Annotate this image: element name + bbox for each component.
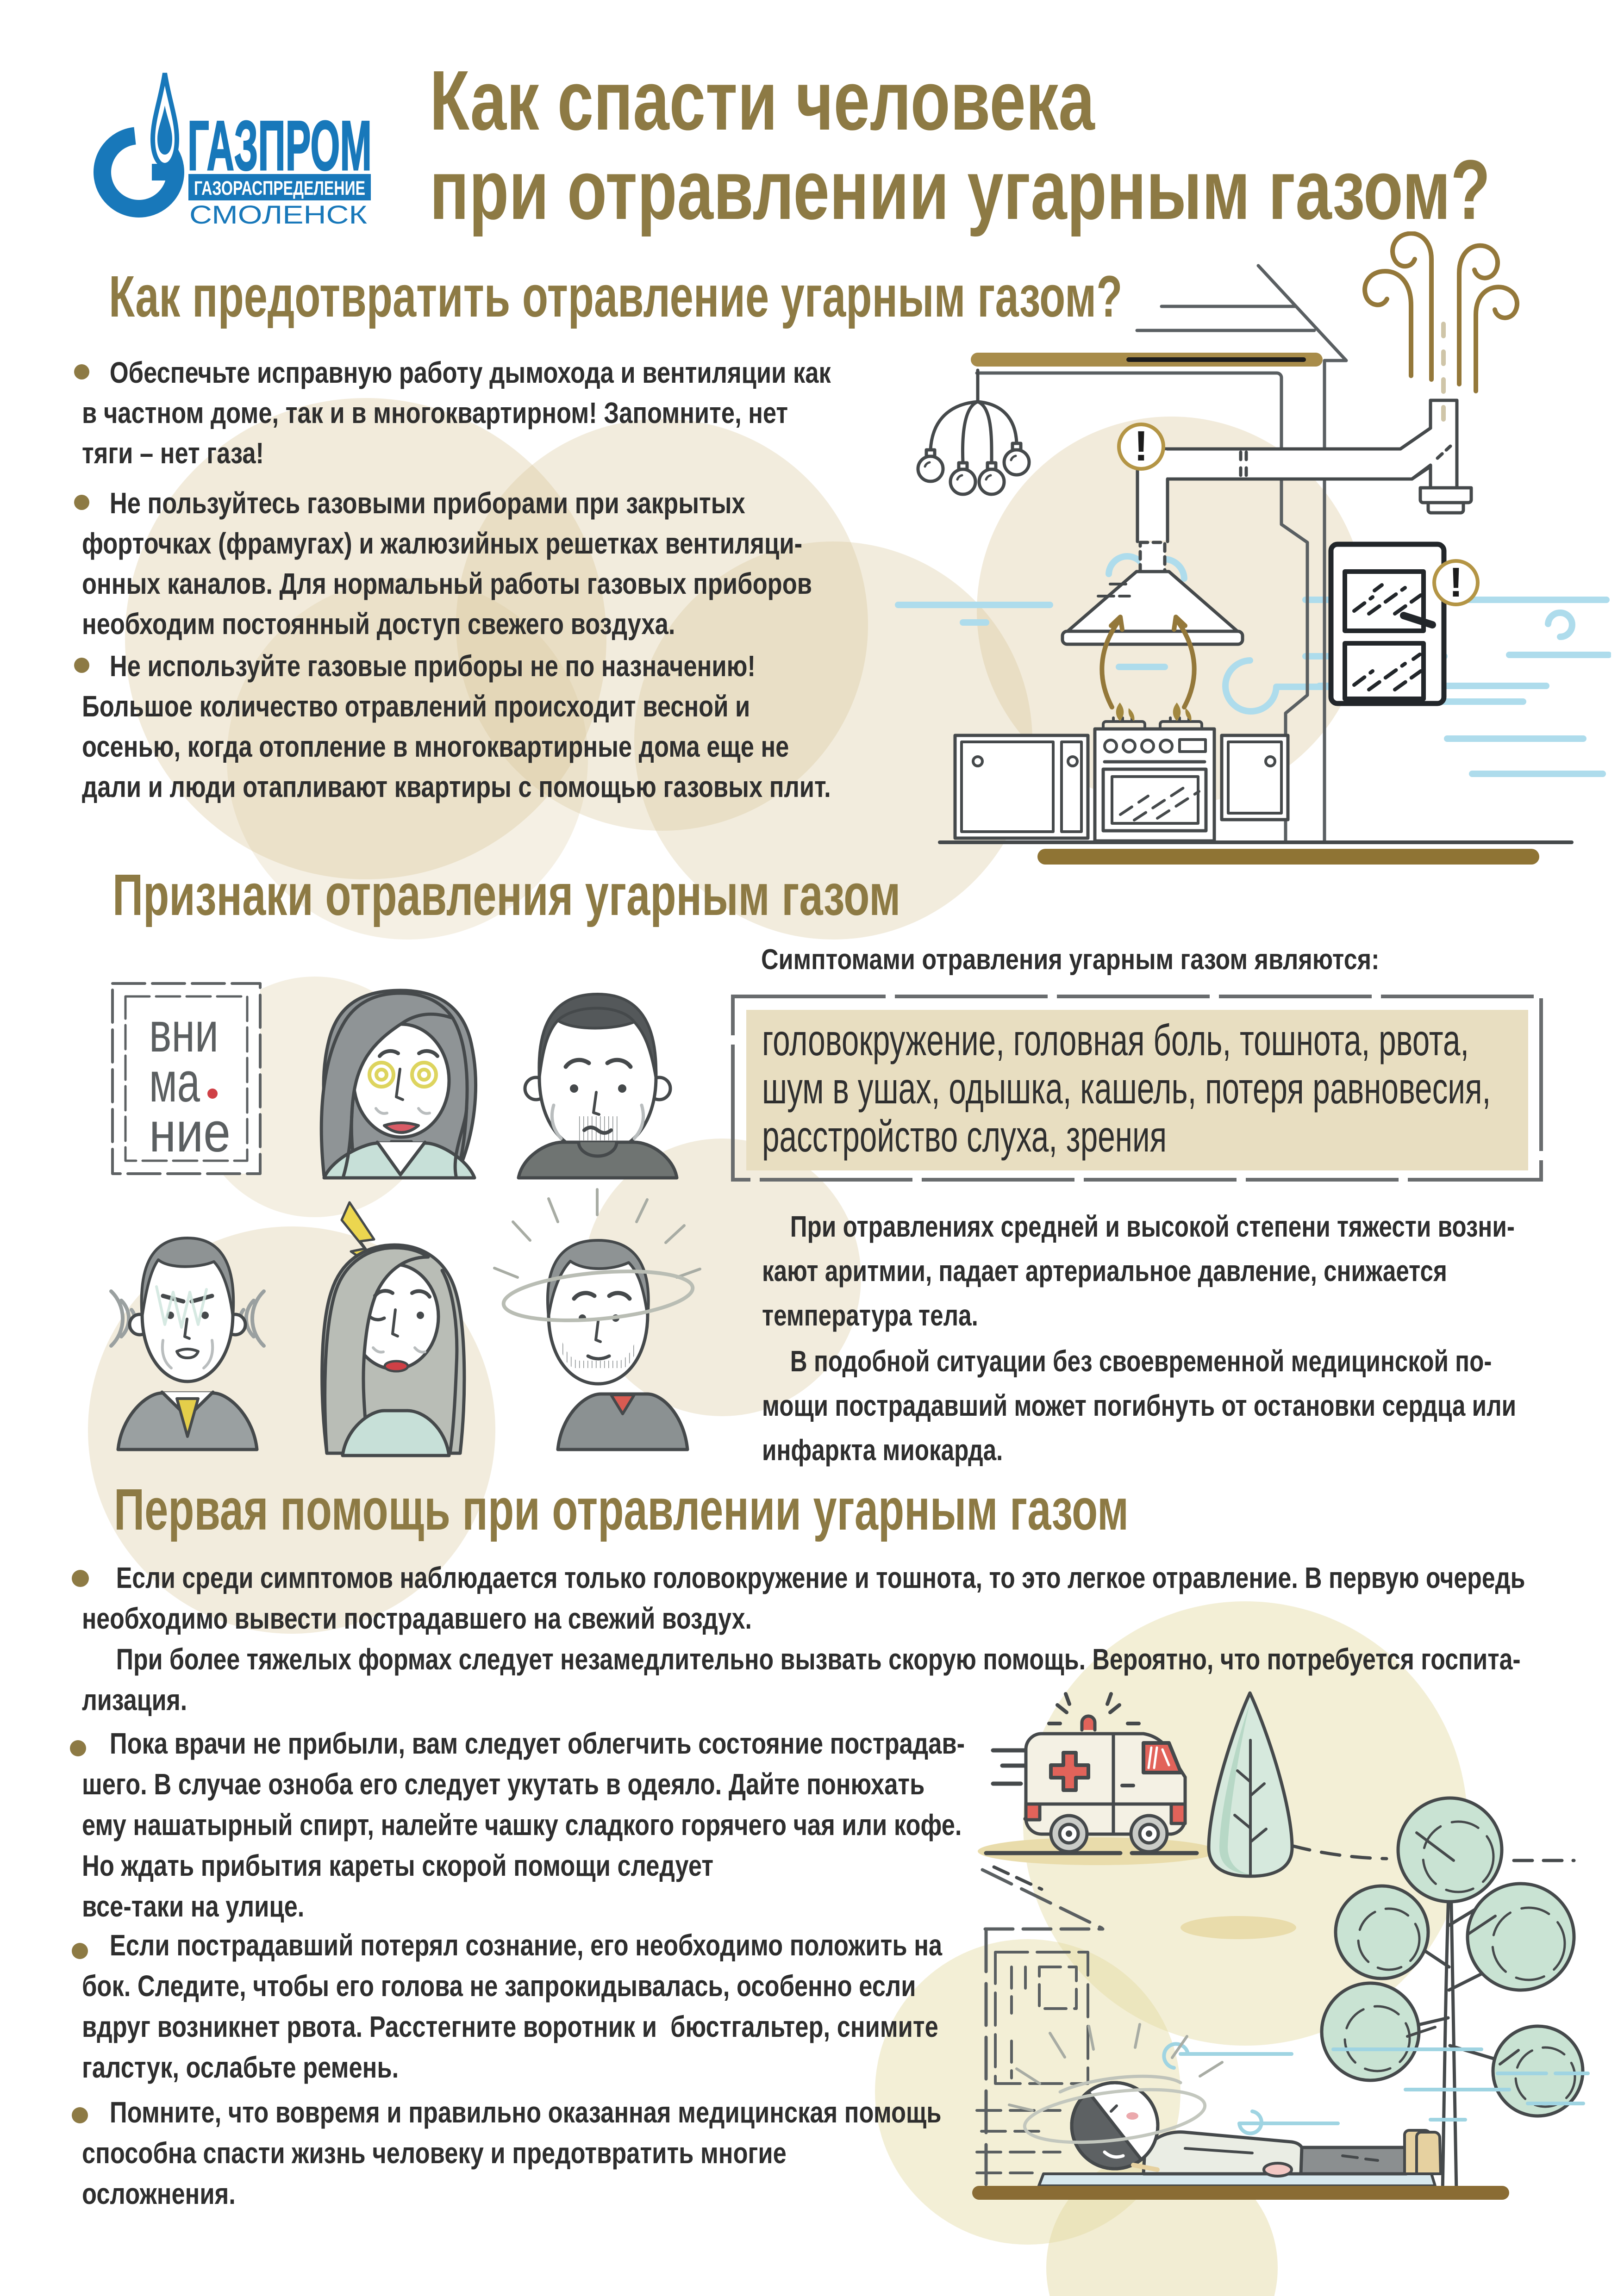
svg-text:СМОЛЕНСК: СМОЛЕНСК [189,200,367,229]
svg-text:ние: ние [149,1101,231,1164]
svg-text:!: ! [1449,560,1463,606]
svg-text:ГАЗОРАСПРЕДЕЛЕНИЕ: ГАЗОРАСПРЕДЕЛЕНИЕ [194,177,365,199]
svg-text:ГАЗПРОМ: ГАЗПРОМ [187,106,372,185]
svg-text:!: ! [1134,423,1149,470]
